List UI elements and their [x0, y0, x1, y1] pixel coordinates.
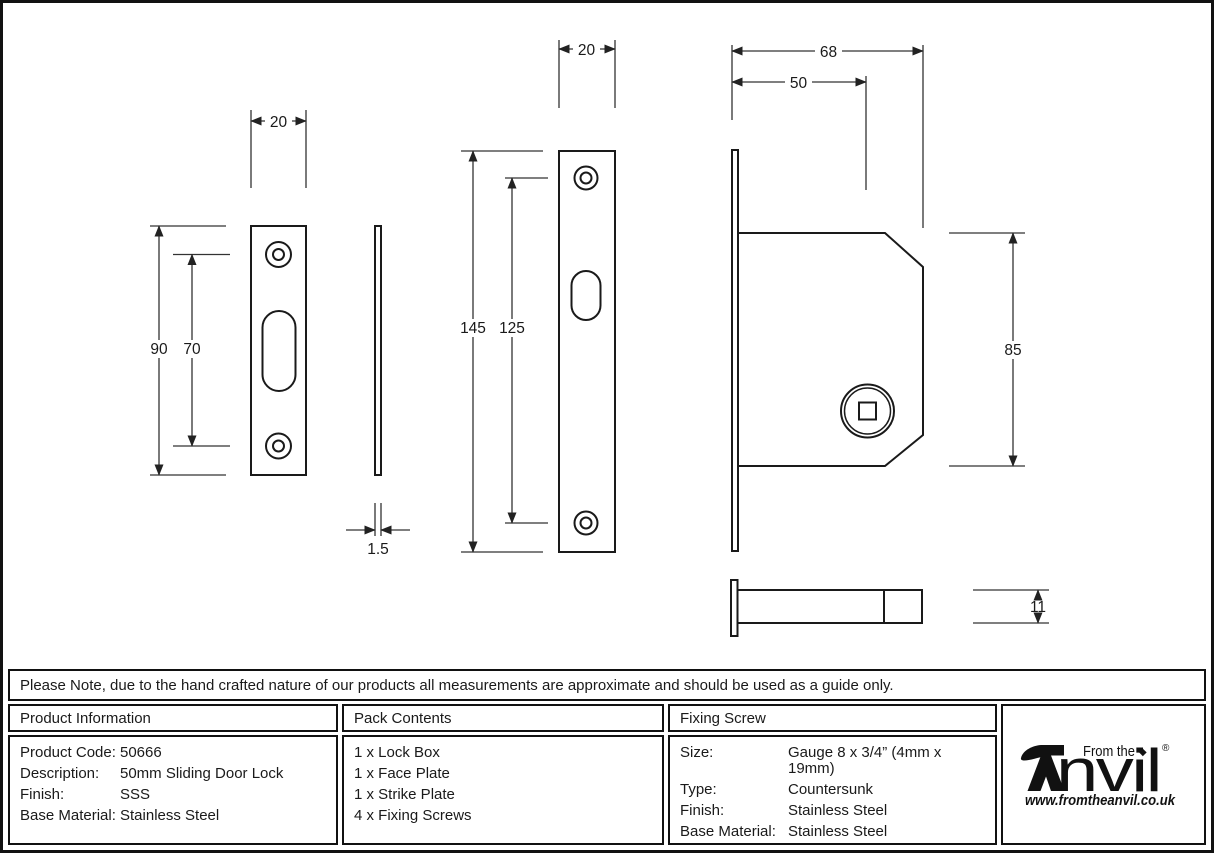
pack-item: 1 x Lock Box: [354, 745, 652, 761]
screw-value: Stainless Steel: [788, 803, 887, 819]
lock-box-outline: [732, 150, 923, 551]
info-label: Description:: [20, 766, 120, 782]
spec-table: Please Note, due to the hand crafted nat…: [8, 669, 1206, 845]
dim-face-width: 20: [578, 42, 596, 59]
strike-plate-side-view: 1.5: [346, 226, 410, 558]
face-plate-outline: [559, 151, 615, 552]
info-value: 50mm Sliding Door Lock: [120, 766, 283, 782]
diamond-icon: ◆: [1139, 747, 1147, 758]
info-row-finish: Finish: SSS: [20, 787, 326, 803]
screw-label: Base Material:: [680, 824, 788, 840]
info-row-product-code: Product Code: 50666: [20, 745, 326, 761]
info-label: Base Material:: [20, 808, 120, 824]
pack-contents-cell: 1 x Lock Box 1 x Face Plate 1 x Strike P…: [342, 735, 664, 845]
screw-value: Gauge 8 x 3/4” (4mm x 19mm): [788, 745, 985, 777]
info-row-description: Description: 50mm Sliding Door Lock: [20, 766, 326, 782]
screw-row-type: Type: Countersunk: [680, 782, 985, 798]
dim-face-hole-spacing: 125: [499, 320, 525, 337]
pack-item: 1 x Face Plate: [354, 766, 652, 782]
screw-label: Finish:: [680, 803, 788, 819]
note-bar: Please Note, due to the hand crafted nat…: [8, 669, 1206, 701]
info-value: 50666: [120, 745, 162, 761]
pack-item: 4 x Fixing Screws: [354, 808, 652, 824]
dim-strike-thickness: 1.5: [367, 541, 389, 558]
info-value: Stainless Steel: [120, 808, 219, 824]
info-value: SSS: [120, 787, 150, 803]
dim-lockbox-backset: 50: [790, 75, 808, 92]
screw-row-size: Size: Gauge 8 x 3/4” (4mm x 19mm): [680, 745, 985, 777]
header-product-information: Product Information: [8, 704, 338, 732]
dim-lockbox-height: 85: [1004, 342, 1021, 359]
dim-lockbox-thickness: 11: [1030, 599, 1046, 616]
fixing-screw-cell: Size: Gauge 8 x 3/4” (4mm x 19mm) Type: …: [668, 735, 997, 845]
product-information-cell: Product Code: 50666 Description: 50mm Sl…: [8, 735, 338, 845]
info-row-base-material: Base Material: Stainless Steel: [20, 808, 326, 824]
dim-face-height: 145: [460, 320, 486, 337]
lock-box-bottom-view: 11: [731, 580, 1049, 636]
product-drawing-sheet: 20 90 70 1.5: [0, 0, 1214, 853]
pack-item: 1 x Strike Plate: [354, 787, 652, 803]
from-the-text: From the: [1083, 743, 1135, 760]
anvil-logo: nvil From the ◆ ® www.fromtheanvil.co.uk: [1015, 740, 1193, 810]
screw-row-finish: Finish: Stainless Steel: [680, 803, 985, 819]
dim-strike-height: 90: [150, 341, 168, 358]
info-label: Product Code:: [20, 745, 120, 761]
note-text: Please Note, due to the hand crafted nat…: [20, 677, 894, 694]
screw-value: Stainless Steel: [788, 824, 887, 840]
dim-strike-width: 20: [270, 114, 288, 131]
strike-plate-outline: [251, 226, 306, 475]
header-pack-contents: Pack Contents: [342, 704, 664, 732]
brand-logo-cell: nvil From the ◆ ® www.fromtheanvil.co.uk: [1001, 704, 1206, 845]
screw-value: Countersunk: [788, 782, 873, 798]
screw-label: Size:: [680, 745, 788, 777]
screw-row-base-material: Base Material: Stainless Steel: [680, 824, 985, 840]
dim-strike-hole-spacing: 70: [183, 341, 201, 358]
info-label: Finish:: [20, 787, 120, 803]
dim-lockbox-depth: 68: [820, 44, 837, 61]
registered-mark: ®: [1162, 743, 1170, 754]
brand-url: www.fromtheanvil.co.uk: [1025, 792, 1176, 809]
technical-drawing: 20 90 70 1.5: [3, 3, 1211, 666]
screw-label: Type:: [680, 782, 788, 798]
header-fixing-screw: Fixing Screw: [668, 704, 997, 732]
